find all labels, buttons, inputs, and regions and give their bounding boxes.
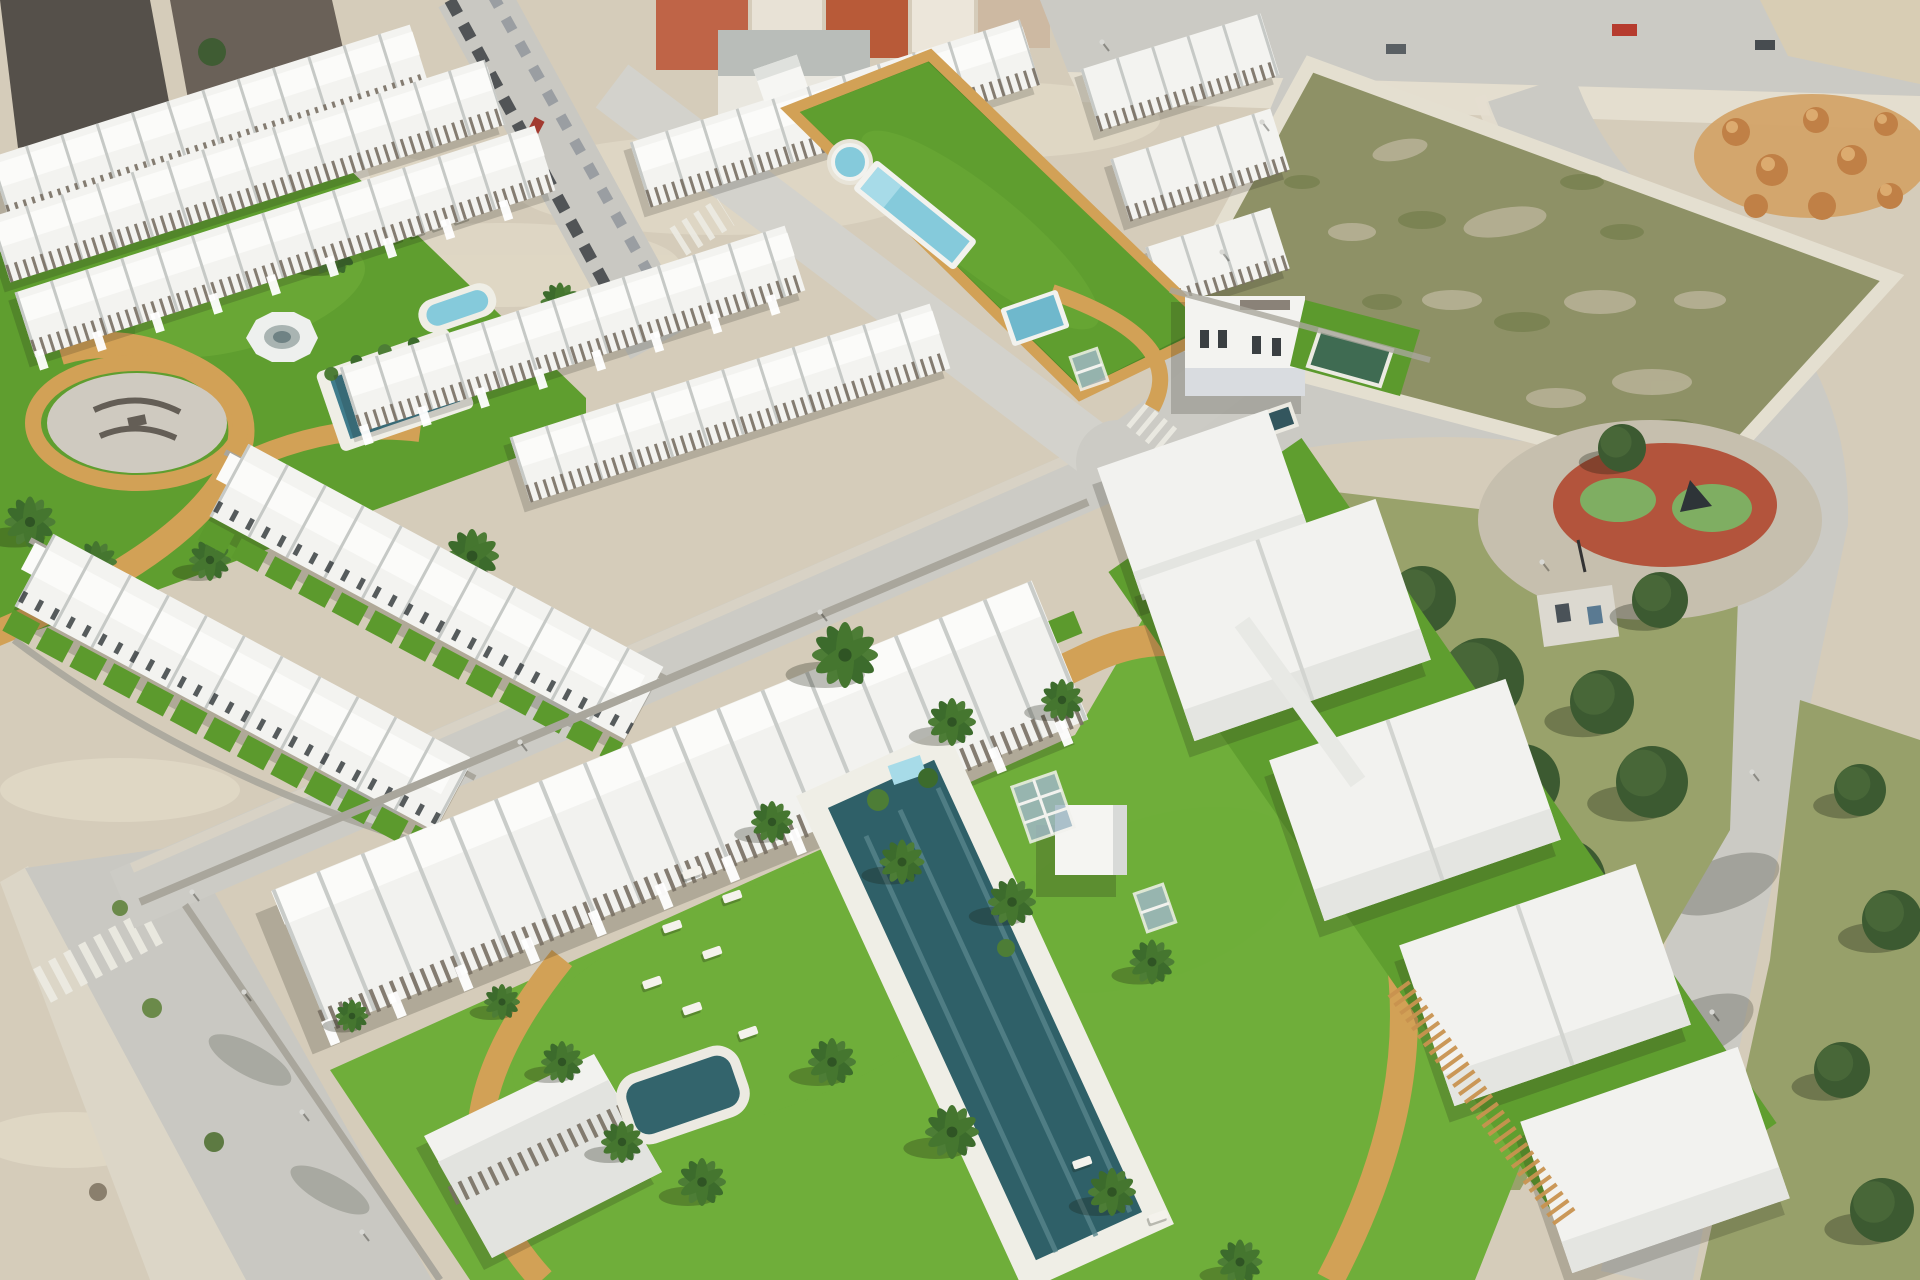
aerial-render [0,0,1920,1280]
utility-hut [1537,585,1619,647]
red-car [1612,24,1637,36]
central-plaza [47,373,227,473]
